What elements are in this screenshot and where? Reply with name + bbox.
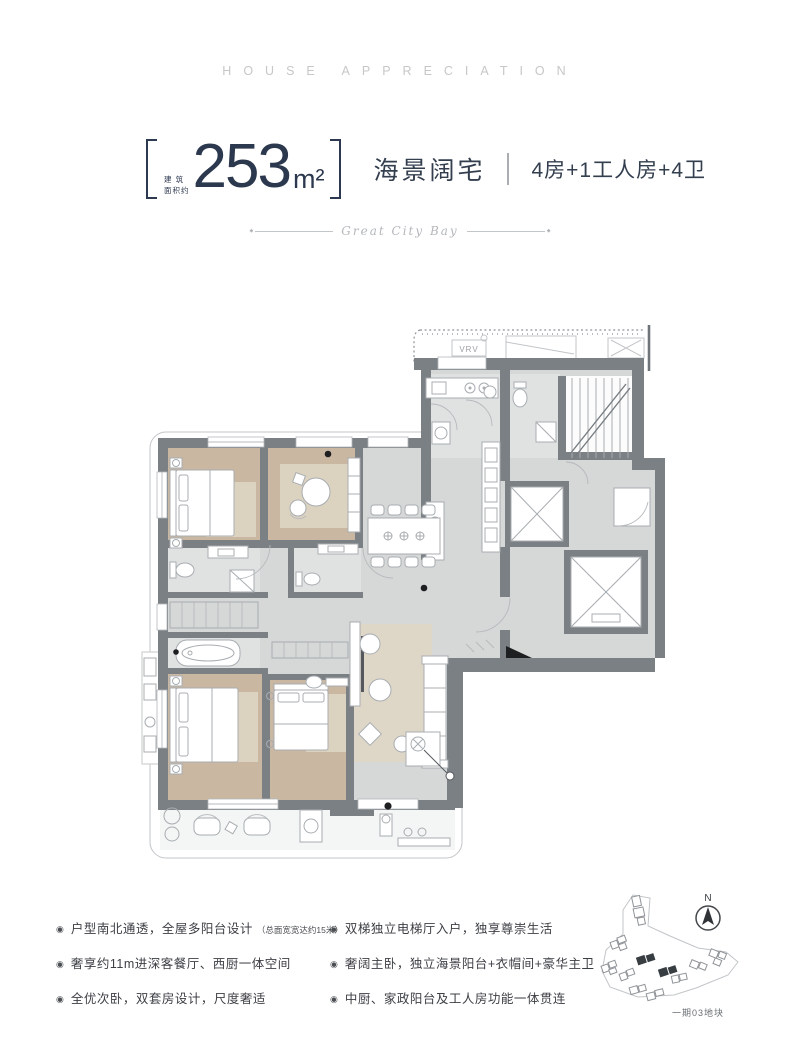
highlighted-building	[636, 952, 656, 965]
area-prefix-line1: 建 筑	[164, 175, 190, 186]
feature-item: ◉ 奢享约11m进深客餐厅、西厨一体空间	[56, 953, 343, 972]
feature-item: ◉ 全优次卧，双套房设计，尺度奢适	[56, 988, 343, 1007]
bracket-left	[146, 139, 157, 199]
north-label: N	[704, 893, 711, 904]
bath4-toilet	[306, 676, 322, 688]
tagline-left-rule	[255, 231, 333, 232]
area-prefix: 建 筑 面积约	[164, 151, 190, 197]
feature-list-right: ◉ 双梯独立电梯厅入户，独享尊崇生活 ◉ 奢阔主卧，独立海景阳台+衣帽间+豪华主…	[330, 918, 594, 1023]
tagline: ◆ Great City Bay ◆	[0, 224, 800, 238]
bathtub	[176, 640, 240, 666]
page-title: 海景阔宅	[373, 151, 485, 187]
bullet-icon: ◉	[330, 924, 338, 935]
bracket-right	[330, 139, 341, 199]
area-value: 253	[193, 136, 290, 198]
compass-icon: N	[696, 893, 720, 930]
feature-list-left: ◉ 户型南北通透，全屋多阳台设计 （总面宽宽达约15米） ◉ 奢享约11m进深客…	[56, 918, 343, 1023]
page: HOUSE APPRECIATION 建 筑 面积约 253 m² 海景阔宅 4…	[0, 0, 800, 1049]
elevator-shaft-2	[564, 550, 648, 634]
tagline-script: Great City Bay	[341, 224, 458, 238]
lobby-niche	[614, 488, 650, 526]
headline: 建 筑 面积约 253 m² 海景阔宅 4房+1工人房+4卫	[146, 134, 706, 204]
tagline-left-mark: ◆	[249, 228, 253, 234]
bullet-icon: ◉	[56, 994, 64, 1005]
elevator-shaft-1	[505, 481, 569, 547]
tagline-right-rule	[467, 231, 545, 232]
area-unit: m²	[293, 164, 324, 195]
masthead-text: HOUSE APPRECIATION	[0, 64, 800, 78]
site-map: N 一期03地块	[598, 876, 798, 1031]
bullet-icon: ◉	[330, 994, 338, 1005]
vrv-label: VRV	[459, 345, 478, 354]
bullet-icon: ◉	[56, 959, 64, 970]
floor-plan: VRV	[58, 292, 708, 877]
page-subtitle: 4房+1工人房+4卫	[531, 154, 706, 184]
title-divider	[507, 153, 509, 185]
tagline-right-mark: ◆	[547, 228, 551, 234]
plot-label: 一期03地块	[672, 1007, 724, 1018]
feature-item: ◉ 双梯独立电梯厅入户，独享尊崇生活	[330, 918, 594, 937]
bullet-icon: ◉	[56, 924, 64, 935]
feature-item: ◉ 奢阔主卧，独立海景阳台+衣帽间+豪华主卫	[330, 953, 594, 972]
area-prefix-line2: 面积约	[164, 186, 190, 197]
bed-master	[170, 676, 238, 774]
feature-item: ◉ 户型南北通透，全屋多阳台设计 （总面宽宽达约15米）	[56, 918, 343, 937]
bullet-icon: ◉	[330, 959, 338, 970]
feature-item: ◉ 中厨、家政阳台及工人房功能一体贯连	[330, 988, 594, 1007]
ac-platforms: VRV	[452, 335, 644, 360]
bed-bedroom1	[170, 458, 234, 548]
